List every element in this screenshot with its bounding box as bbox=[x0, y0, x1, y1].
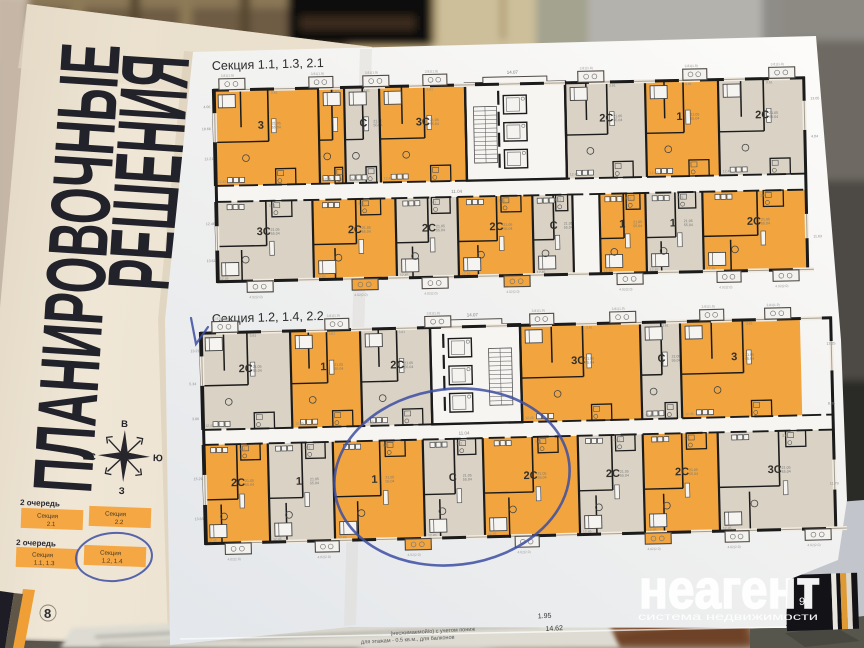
svg-text:4.02(2.0): 4.02(2.0) bbox=[647, 547, 660, 551]
svg-text:55.04: 55.04 bbox=[272, 125, 281, 129]
svg-text:3.81(1.9): 3.81(1.9) bbox=[365, 71, 378, 75]
svg-text:3.81(1.9): 3.81(1.9) bbox=[612, 307, 625, 311]
svg-text:13.25: 13.25 bbox=[826, 341, 835, 345]
svg-text:4.02(2.0): 4.02(2.0) bbox=[775, 284, 788, 288]
svg-text:Секция: Секция bbox=[105, 510, 126, 518]
svg-text:2С: 2С bbox=[599, 112, 613, 124]
svg-text:55.04: 55.04 bbox=[564, 225, 573, 229]
svg-text:13.61: 13.61 bbox=[207, 259, 216, 263]
svg-text:2С: 2С bbox=[489, 221, 503, 233]
svg-text:15.21: 15.21 bbox=[194, 477, 203, 481]
svg-text:55.04: 55.04 bbox=[503, 227, 512, 231]
svg-text:4.02(2.0): 4.02(2.0) bbox=[407, 553, 420, 557]
svg-text:12.45: 12.45 bbox=[525, 416, 534, 420]
svg-text:2С: 2С bbox=[523, 470, 537, 482]
svg-text:2С: 2С bbox=[755, 109, 769, 121]
svg-text:С: С bbox=[449, 472, 457, 484]
svg-text:55.04: 55.04 bbox=[310, 481, 319, 485]
svg-text:55.04: 55.04 bbox=[769, 115, 778, 119]
svg-text:55.04: 55.04 bbox=[538, 476, 547, 480]
svg-text:55.04: 55.04 bbox=[745, 357, 754, 361]
svg-text:3.81(1.9): 3.81(1.9) bbox=[221, 74, 234, 78]
svg-text:3.61: 3.61 bbox=[250, 334, 257, 338]
svg-text:4.02(2.0): 4.02(2.0) bbox=[506, 290, 519, 294]
svg-text:55.04: 55.04 bbox=[373, 123, 382, 127]
svg-text:3С: 3С bbox=[257, 226, 271, 238]
svg-text:9: 9 bbox=[799, 596, 805, 608]
svg-text:С: С bbox=[89, 452, 96, 463]
svg-text:11.63: 11.63 bbox=[813, 234, 822, 238]
svg-text:1: 1 bbox=[670, 217, 676, 229]
svg-text:С: С bbox=[359, 117, 367, 129]
svg-text:55.04: 55.04 bbox=[404, 365, 413, 369]
svg-text:4.02(2.0): 4.02(2.0) bbox=[719, 285, 732, 289]
svg-text:3С: 3С bbox=[767, 464, 781, 476]
svg-text:3.81(1.9): 3.81(1.9) bbox=[311, 72, 324, 76]
svg-text:3.06: 3.06 bbox=[192, 417, 199, 421]
svg-text:3.61: 3.61 bbox=[746, 321, 753, 325]
svg-text:2С: 2С bbox=[606, 468, 620, 480]
svg-text:11.04: 11.04 bbox=[451, 189, 463, 194]
svg-text:55.04: 55.04 bbox=[385, 479, 394, 483]
svg-text:3.81(1.9): 3.81(1.9) bbox=[425, 69, 438, 73]
svg-text:2С: 2С bbox=[348, 224, 362, 236]
svg-text:12.45: 12.45 bbox=[723, 169, 732, 173]
svg-text:1: 1 bbox=[371, 474, 377, 486]
svg-text:3.81(1.9): 3.81(1.9) bbox=[532, 309, 545, 313]
svg-text:3.61: 3.61 bbox=[271, 91, 278, 95]
svg-text:3.61: 3.61 bbox=[429, 200, 436, 204]
svg-text:2С: 2С bbox=[390, 359, 404, 371]
svg-text:3.61: 3.61 bbox=[782, 434, 789, 438]
svg-text:4.02(2.0): 4.02(2.0) bbox=[727, 545, 740, 549]
svg-text:2С: 2С bbox=[231, 477, 245, 489]
svg-text:3.81(1.9): 3.81(1.9) bbox=[701, 304, 714, 308]
svg-text:3.61: 3.61 bbox=[609, 84, 616, 88]
svg-text:14.07: 14.07 bbox=[467, 312, 479, 317]
svg-text:3С: 3С bbox=[571, 355, 585, 367]
svg-text:3: 3 bbox=[731, 351, 737, 363]
svg-text:3.61: 3.61 bbox=[332, 89, 339, 93]
svg-text:3.61: 3.61 bbox=[554, 198, 561, 202]
svg-text:3.61: 3.61 bbox=[684, 436, 691, 440]
svg-text:3.61: 3.61 bbox=[304, 445, 311, 449]
svg-text:55.04: 55.04 bbox=[362, 230, 371, 234]
svg-text:2С: 2С bbox=[422, 222, 436, 234]
svg-text:55.04: 55.04 bbox=[245, 483, 254, 487]
svg-text:2.2: 2.2 bbox=[115, 519, 124, 526]
svg-text:3.61: 3.61 bbox=[382, 443, 389, 447]
svg-text:3С: 3С bbox=[416, 116, 430, 128]
svg-text:4.02(2.0): 4.02(2.0) bbox=[317, 555, 330, 559]
svg-text:2С: 2С bbox=[747, 216, 761, 228]
svg-text:12.45: 12.45 bbox=[218, 180, 227, 184]
svg-text:3.81(1.9): 3.81(1.9) bbox=[685, 64, 698, 68]
svg-text:55.04: 55.04 bbox=[761, 221, 770, 225]
svg-text:3.61: 3.61 bbox=[685, 82, 692, 86]
svg-text:С: С bbox=[657, 353, 665, 365]
svg-text:2 очередь: 2 очередь bbox=[16, 538, 56, 548]
svg-text:3.61: 3.61 bbox=[239, 447, 246, 451]
svg-text:3.61: 3.61 bbox=[535, 440, 542, 444]
svg-text:55.04: 55.04 bbox=[782, 470, 791, 474]
svg-text:3.81(1.9): 3.81(1.9) bbox=[580, 66, 593, 70]
svg-text:14.07: 14.07 bbox=[507, 70, 519, 75]
svg-text:13.21: 13.21 bbox=[190, 349, 199, 353]
svg-text:12.45: 12.45 bbox=[384, 176, 393, 180]
svg-text:1.2, 1.4: 1.2, 1.4 bbox=[102, 558, 123, 566]
svg-text:3.81(1.9): 3.81(1.9) bbox=[427, 311, 440, 315]
svg-text:4.02(2.0): 4.02(2.0) bbox=[249, 295, 262, 299]
svg-text:8: 8 bbox=[44, 606, 51, 621]
svg-text:55.04: 55.04 bbox=[684, 223, 693, 227]
svg-text:12.45: 12.45 bbox=[570, 172, 579, 176]
svg-text:З: З bbox=[119, 486, 125, 497]
svg-text:1.1, 1.3: 1.1, 1.3 bbox=[34, 560, 55, 568]
svg-text:3.61: 3.61 bbox=[358, 202, 365, 206]
svg-text:3.61: 3.61 bbox=[760, 193, 767, 197]
svg-text:2С: 2С bbox=[239, 363, 253, 375]
svg-text:8.36: 8.36 bbox=[828, 402, 835, 406]
svg-text:55.04: 55.04 bbox=[613, 118, 622, 122]
svg-text:3.61: 3.61 bbox=[363, 89, 370, 93]
svg-text:1: 1 bbox=[296, 476, 302, 488]
svg-text:3.61: 3.61 bbox=[766, 80, 773, 84]
svg-text:55.04: 55.04 bbox=[633, 224, 642, 228]
svg-text:55.04: 55.04 bbox=[689, 472, 698, 476]
svg-text:55.04: 55.04 bbox=[672, 358, 681, 362]
svg-text:12.45: 12.45 bbox=[685, 412, 694, 416]
svg-text:12.45: 12.45 bbox=[349, 177, 358, 181]
svg-text:2С: 2С bbox=[675, 466, 689, 478]
svg-text:В: В bbox=[121, 419, 128, 430]
svg-text:55.04: 55.04 bbox=[253, 369, 262, 373]
svg-text:3.61: 3.61 bbox=[329, 332, 336, 336]
svg-text:11.79: 11.79 bbox=[830, 481, 839, 485]
svg-text:Секция: Секция bbox=[100, 549, 121, 557]
svg-text:12.45: 12.45 bbox=[650, 171, 659, 175]
svg-text:3.61: 3.61 bbox=[614, 438, 621, 442]
svg-text:3.61: 3.61 bbox=[426, 87, 433, 91]
svg-text:3.61: 3.61 bbox=[499, 199, 506, 203]
svg-text:1: 1 bbox=[676, 111, 682, 123]
svg-text:10.66: 10.66 bbox=[202, 127, 211, 131]
svg-text:3.61: 3.61 bbox=[625, 196, 632, 200]
svg-text:4.02(2.0): 4.02(2.0) bbox=[619, 287, 632, 291]
svg-text:3.61: 3.61 bbox=[677, 195, 684, 199]
svg-text:1: 1 bbox=[619, 218, 625, 230]
svg-text:13.63: 13.63 bbox=[195, 517, 204, 521]
svg-text:3: 3 bbox=[258, 120, 264, 132]
svg-text:4.02(2.0): 4.02(2.0) bbox=[424, 291, 437, 295]
svg-text:2.1: 2.1 bbox=[47, 521, 56, 528]
svg-text:3.61: 3.61 bbox=[456, 442, 463, 446]
svg-text:5.34: 5.34 bbox=[189, 382, 196, 386]
svg-text:2 очередь: 2 очередь bbox=[20, 498, 60, 508]
svg-text:3.81(1.9): 3.81(1.9) bbox=[766, 303, 779, 307]
svg-text:Секция: Секция bbox=[32, 551, 53, 559]
svg-text:12.46: 12.46 bbox=[206, 222, 215, 226]
svg-text:система недвижимости: система недвижимости bbox=[638, 611, 818, 623]
svg-text:3.81(1.9): 3.81(1.9) bbox=[771, 62, 784, 66]
svg-text:14.62: 14.62 bbox=[545, 625, 563, 633]
svg-text:55.04: 55.04 bbox=[463, 477, 472, 481]
svg-text:55.04: 55.04 bbox=[620, 474, 629, 478]
svg-text:3.61: 3.61 bbox=[399, 330, 406, 334]
svg-text:Секция: Секция bbox=[37, 512, 58, 520]
svg-text:4.02(2.0): 4.02(2.0) bbox=[354, 293, 367, 297]
svg-text:3.81(1.9): 3.81(1.9) bbox=[214, 316, 227, 320]
svg-text:4.02(2.0): 4.02(2.0) bbox=[228, 557, 241, 561]
svg-text:4.02(2.0): 4.02(2.0) bbox=[517, 550, 530, 554]
svg-text:55.04: 55.04 bbox=[690, 117, 699, 121]
svg-text:С: С bbox=[550, 220, 558, 232]
svg-text:55.04: 55.04 bbox=[271, 232, 280, 236]
svg-text:12.45: 12.45 bbox=[205, 424, 214, 428]
svg-text:1.95: 1.95 bbox=[538, 613, 552, 621]
svg-text:55.04: 55.04 bbox=[334, 367, 343, 371]
svg-text:3.61: 3.61 bbox=[662, 324, 669, 328]
svg-text:3.61: 3.61 bbox=[586, 325, 593, 329]
svg-text:12.45: 12.45 bbox=[295, 421, 304, 425]
svg-text:4.06: 4.06 bbox=[203, 105, 210, 109]
svg-text:4.02(2.0): 4.02(2.0) bbox=[807, 543, 820, 547]
svg-text:11.04: 11.04 bbox=[458, 430, 470, 435]
svg-text:3.61: 3.61 bbox=[269, 204, 276, 208]
svg-text:Ю: Ю bbox=[153, 453, 163, 464]
svg-text:55.04: 55.04 bbox=[585, 361, 594, 365]
svg-text:11.21: 11.21 bbox=[204, 157, 213, 161]
svg-text:12.45: 12.45 bbox=[323, 178, 332, 182]
svg-text:4.04: 4.04 bbox=[811, 134, 818, 138]
svg-text:55.04: 55.04 bbox=[436, 228, 445, 232]
svg-text:3.81(1.9): 3.81(1.9) bbox=[327, 314, 340, 318]
svg-text:13.05: 13.05 bbox=[810, 96, 819, 100]
svg-text:55.04: 55.04 bbox=[430, 122, 439, 126]
svg-text:1: 1 bbox=[320, 361, 326, 373]
svg-text:12.45: 12.45 bbox=[645, 413, 654, 417]
